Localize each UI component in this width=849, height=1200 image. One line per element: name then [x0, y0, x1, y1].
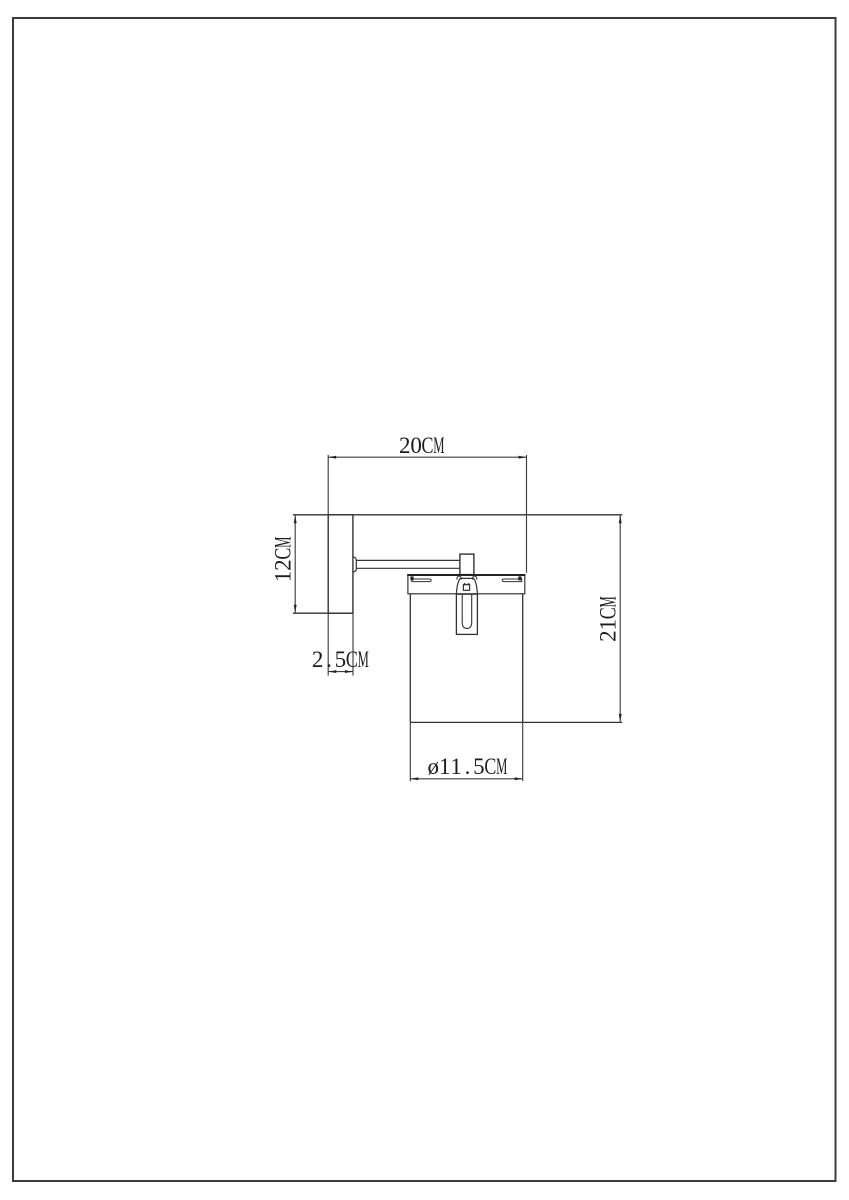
- svg-text:C: C: [597, 607, 622, 619]
- svg-text:2: 2: [271, 559, 296, 571]
- svg-text:C: C: [422, 434, 434, 459]
- svg-text:M: M: [358, 647, 369, 673]
- svg-text:5: 5: [473, 754, 485, 779]
- svg-text:ø: ø: [428, 754, 440, 779]
- svg-text:M: M: [496, 754, 507, 780]
- svg-text:M: M: [433, 433, 444, 459]
- svg-text:5: 5: [335, 647, 347, 672]
- svg-text:C: C: [346, 648, 358, 673]
- svg-text:.: .: [326, 647, 332, 672]
- svg-text:M: M: [596, 596, 622, 607]
- svg-text:2: 2: [312, 647, 324, 672]
- svg-text:2: 2: [596, 630, 621, 642]
- svg-text:M: M: [271, 537, 297, 548]
- svg-text:1: 1: [271, 571, 296, 583]
- svg-text:2: 2: [399, 433, 411, 458]
- svg-text:1: 1: [439, 754, 451, 779]
- svg-text:1: 1: [596, 619, 621, 631]
- svg-text:C: C: [272, 548, 297, 560]
- svg-text:0: 0: [410, 433, 422, 458]
- svg-text:.: .: [465, 754, 471, 779]
- svg-text:C: C: [484, 755, 496, 780]
- svg-text:1: 1: [450, 754, 462, 779]
